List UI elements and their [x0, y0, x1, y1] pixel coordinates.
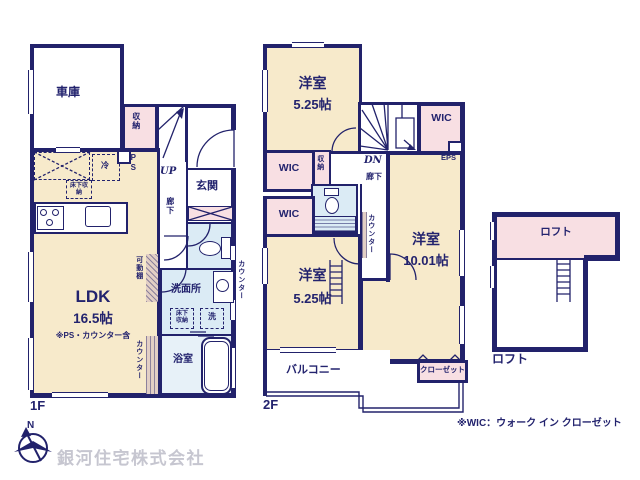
bathtub-inner [204, 341, 229, 391]
floorplan-page: 車庫 収納 UP 玄関 廊下 冷 PS 床下収納 LDK 16.5帖 ※PS・カ… [0, 0, 640, 480]
label-closet-small-2f: 収納 [316, 155, 324, 171]
window [292, 42, 324, 48]
label-wic-midleft: WIC [263, 163, 315, 175]
company-logo-text: 銀河住宅株式会社 [57, 444, 205, 469]
staircase-2f [358, 102, 420, 154]
label-garage: 車庫 [56, 86, 80, 99]
label-washer: 洗 [208, 313, 216, 322]
window [28, 70, 34, 114]
front-door-opening [231, 130, 237, 168]
hallway-2f-a [329, 154, 362, 184]
kitchen-sink [85, 206, 111, 227]
caption-loft: ロフト [492, 353, 528, 366]
vanity-basin-1f [216, 279, 229, 292]
counter-strip-1f [146, 336, 158, 394]
label-up: UP [160, 166, 176, 177]
label-counter-bath: カウンター [135, 340, 143, 380]
window [230, 300, 236, 320]
window [52, 392, 108, 398]
window [490, 266, 495, 288]
wall [584, 255, 620, 261]
label-bathroom: 浴室 [173, 354, 193, 365]
label-washroom: 洗面所 [171, 284, 201, 295]
label-dn: DN [364, 155, 382, 166]
window [459, 306, 465, 344]
caption-1f: 1F [30, 399, 45, 413]
label-wic-topright: WIC [418, 113, 465, 125]
label-room-right: 洋室 [388, 232, 464, 247]
label-hallway-2f: 廊下 [366, 173, 382, 182]
label-movable-shelf: 可動棚 [135, 256, 143, 280]
window [28, 338, 34, 390]
label-balcony: バルコニー [286, 364, 341, 376]
label-room-top-size: 5.25帖 [263, 98, 362, 112]
toilet-tank-1f [221, 237, 231, 259]
eps-box [448, 141, 463, 153]
shoe-cabinet [188, 206, 233, 221]
vanity-2f [313, 216, 356, 232]
label-closet-2f: クローゼット [417, 366, 468, 374]
label-pipe-space: PS [128, 153, 137, 173]
label-room-top: 洋室 [263, 76, 362, 91]
entrance-step-line [188, 168, 233, 170]
label-loft-room: ロフト [492, 227, 620, 239]
toilet-bowl-1f [199, 241, 221, 256]
label-room-right-size: 10.01帖 [388, 254, 464, 268]
staircase-1f [156, 104, 188, 166]
label-room-bottom: 洋室 [263, 268, 362, 283]
stove-burner [40, 209, 47, 216]
label-storage-1f: 収納 [131, 112, 140, 130]
label-eps: EPS [441, 154, 456, 162]
label-ldk-size: 16.5帖 [30, 312, 156, 327]
label-fridge: 冷 [101, 162, 109, 171]
toilet-bowl-2f [325, 197, 339, 214]
label-hallway-1f: 廊下 [165, 197, 174, 215]
label-underfloor-storage-kitchen: 床下収納 [69, 183, 89, 196]
label-room-bottom-size: 5.25帖 [263, 292, 362, 306]
label-wic-bottomleft: WIC [263, 209, 315, 221]
label-ldk: LDK [30, 288, 156, 307]
pantry-counter-dashed [34, 152, 90, 180]
hallway-1f [160, 162, 186, 268]
wic-footnote: ※WIC：ウォーク イン クローゼット [457, 418, 622, 429]
compass-icon [14, 427, 52, 462]
wall [362, 278, 390, 281]
loft-lower [492, 258, 588, 352]
label-counter-2f: カウンター [367, 214, 375, 254]
toilet-tank-2f [324, 188, 339, 196]
compass-north-label: N [27, 420, 34, 431]
caption-2f: 2F [263, 398, 278, 412]
window [280, 347, 336, 353]
label-entrance: 玄関 [196, 180, 218, 192]
label-underfloor-storage-washroom: 床下収納 [174, 311, 190, 324]
stove-burner [46, 219, 53, 226]
label-counter-right: カウンター [237, 260, 245, 300]
stove-burner [52, 209, 59, 216]
